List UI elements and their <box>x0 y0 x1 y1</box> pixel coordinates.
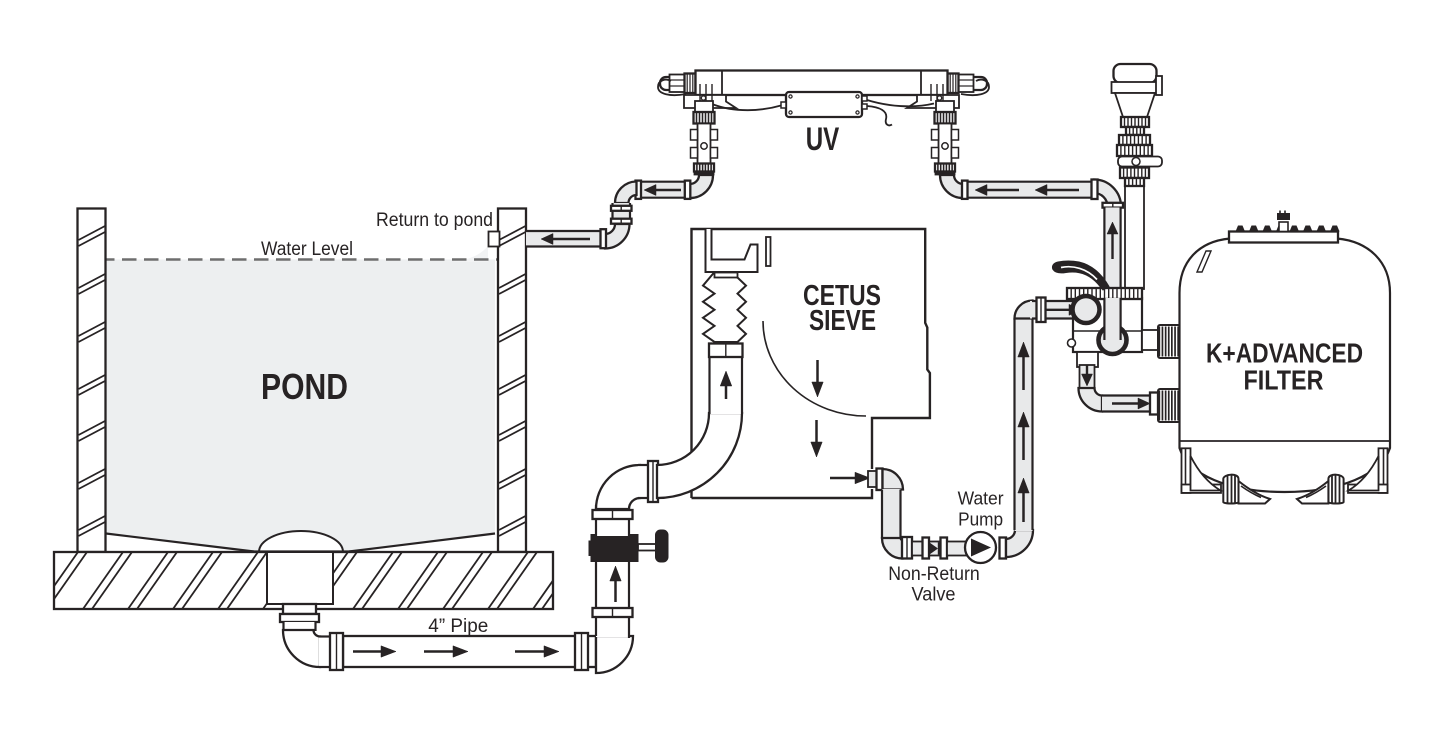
svg-text:Pump: Pump <box>958 510 1003 530</box>
svg-text:POND: POND <box>261 366 348 407</box>
svg-text:Non-Return: Non-Return <box>888 564 980 585</box>
svg-text:4” Pipe: 4” Pipe <box>428 616 488 637</box>
svg-text:Water: Water <box>958 489 1004 509</box>
svg-text:FILTER: FILTER <box>1244 365 1324 396</box>
svg-text:Valve: Valve <box>912 585 956 606</box>
svg-text:UV: UV <box>806 121 840 157</box>
svg-text:Return to pond: Return to pond <box>376 210 493 231</box>
svg-text:Water Level: Water Level <box>261 239 353 260</box>
svg-text:SIEVE: SIEVE <box>809 305 876 337</box>
